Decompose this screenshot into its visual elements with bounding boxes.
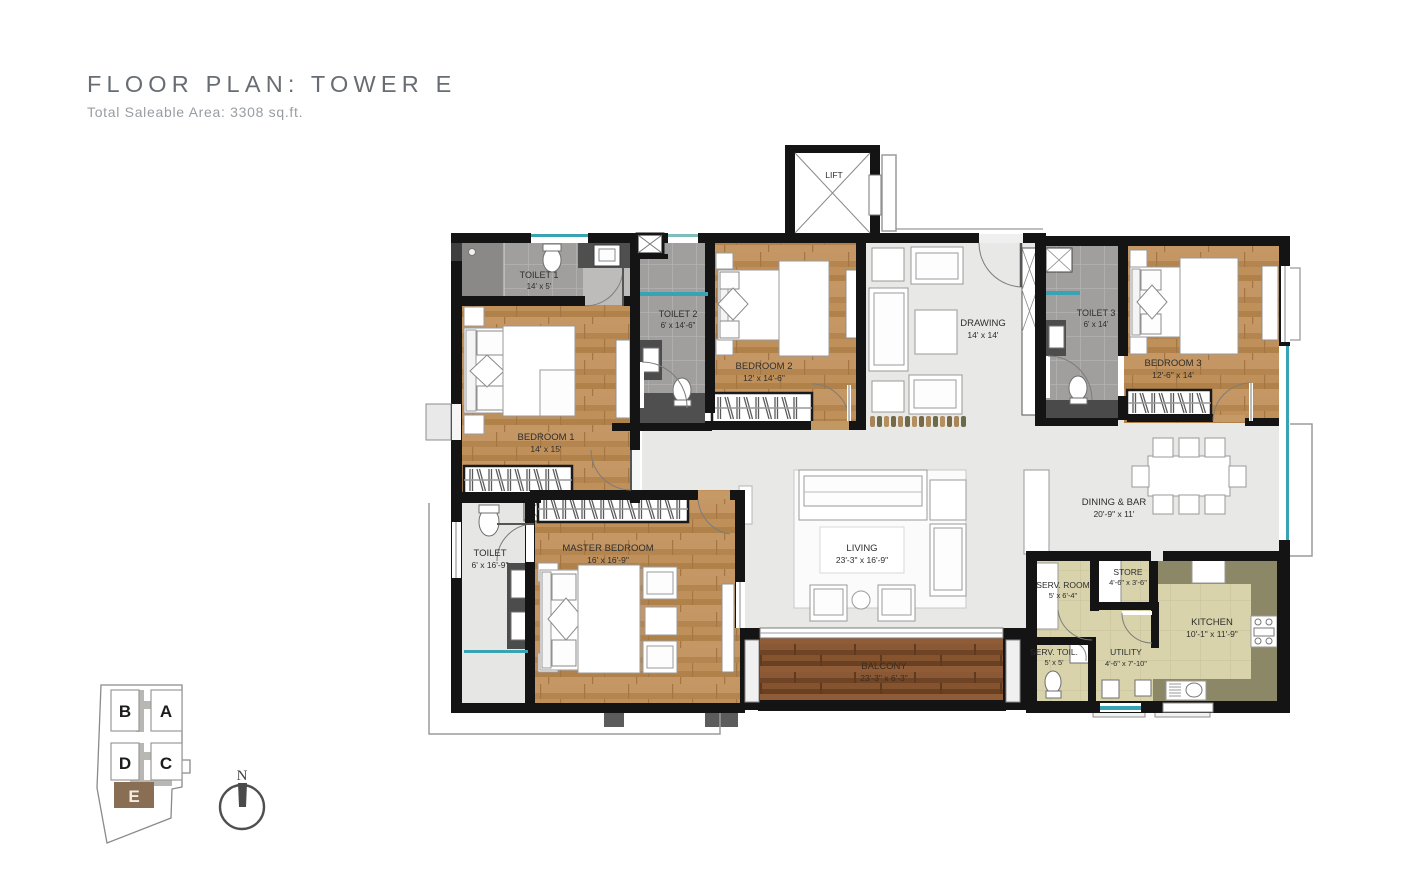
svg-text:4'-6" x 7'-10": 4'-6" x 7'-10" (1105, 659, 1147, 668)
svg-text:BEDROOM 3: BEDROOM 3 (1144, 358, 1201, 369)
svg-text:SERV. TOIL.: SERV. TOIL. (1030, 647, 1078, 657)
svg-text:6' x 14'-6": 6' x 14'-6" (661, 321, 696, 330)
svg-text:D: D (119, 754, 131, 773)
svg-text:UTILITY: UTILITY (1110, 647, 1142, 657)
svg-text:14' x 5': 14' x 5' (527, 282, 552, 291)
svg-text:12' x 14'-6": 12' x 14'-6" (743, 373, 785, 383)
svg-text:E: E (128, 787, 139, 806)
svg-text:TOILET 2: TOILET 2 (659, 309, 698, 319)
svg-text:BALCONY: BALCONY (861, 661, 907, 672)
svg-text:6' x 16'-9": 6' x 16'-9" (472, 560, 509, 570)
svg-text:TOILET: TOILET (473, 548, 506, 559)
svg-text:23'-3" x 16'-9": 23'-3" x 16'-9" (836, 555, 888, 565)
svg-text:16' x 16'-9": 16' x 16'-9" (587, 555, 629, 565)
svg-text:LIVING: LIVING (846, 543, 877, 554)
svg-text:10'-1" x 11'-9": 10'-1" x 11'-9" (1186, 629, 1238, 639)
svg-text:STORE: STORE (1113, 567, 1142, 577)
svg-text:C: C (160, 754, 172, 773)
svg-text:6' x 14': 6' x 14' (1084, 320, 1109, 329)
svg-text:5' x 5': 5' x 5' (1044, 658, 1064, 667)
svg-text:MASTER BEDROOM: MASTER BEDROOM (562, 543, 653, 554)
svg-text:BEDROOM 1: BEDROOM 1 (517, 432, 574, 443)
svg-text:12'-6" x 14': 12'-6" x 14' (1152, 370, 1194, 380)
svg-text:FLOOR PLAN: TOWER E: FLOOR PLAN: TOWER E (87, 71, 457, 97)
svg-text:DINING & BAR: DINING & BAR (1082, 497, 1147, 508)
svg-text:SERV. ROOM: SERV. ROOM (1036, 580, 1089, 590)
svg-text:BEDROOM 2: BEDROOM 2 (735, 361, 792, 372)
svg-text:DRAWING: DRAWING (960, 318, 1006, 329)
svg-text:A: A (160, 702, 172, 721)
svg-text:B: B (119, 702, 131, 721)
svg-text:23'-3" x 6'-3": 23'-3" x 6'-3" (860, 673, 908, 683)
svg-text:KITCHEN: KITCHEN (1191, 617, 1233, 628)
svg-text:4'-6" x 3'-6": 4'-6" x 3'-6" (1109, 578, 1147, 587)
svg-text:TOILET 1: TOILET 1 (520, 270, 559, 280)
svg-text:20'-9" x 11': 20'-9" x 11' (1093, 509, 1134, 519)
svg-text:TOILET 3: TOILET 3 (1077, 308, 1116, 318)
svg-text:5' x 6'-4": 5' x 6'-4" (1049, 591, 1078, 600)
svg-text:14' x 14': 14' x 14' (967, 330, 999, 340)
svg-text:14' x 15': 14' x 15' (530, 444, 562, 454)
svg-text:Total Saleable Area: 3308 sq.f: Total Saleable Area: 3308 sq.ft. (87, 104, 303, 120)
svg-text:N: N (237, 768, 248, 784)
svg-text:LIFT: LIFT (825, 170, 842, 180)
